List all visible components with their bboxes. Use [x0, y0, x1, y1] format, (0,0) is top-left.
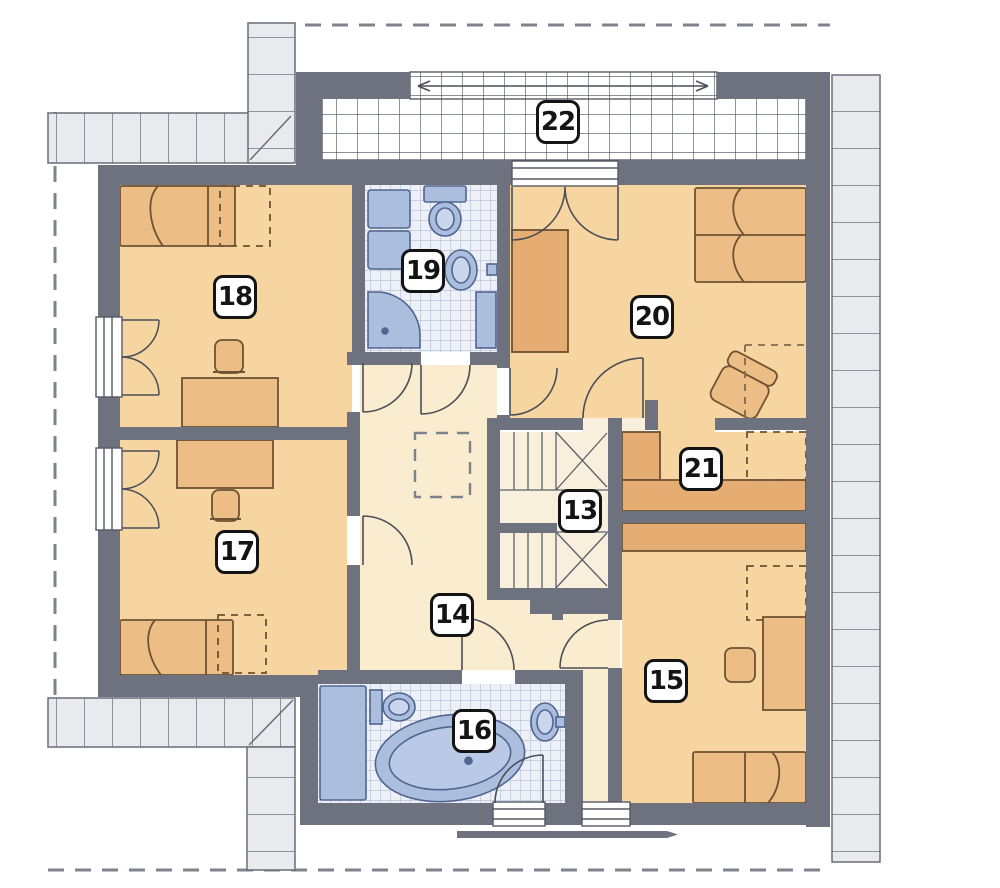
floor-plan-canvas: 13 14 15 16 17 18 19 20 21 22 [0, 0, 1000, 888]
desk-15-icon [763, 617, 806, 710]
room-label-17: 17 [215, 530, 259, 574]
eave-bottom-left-vertical [247, 747, 295, 870]
desk-17-icon [177, 440, 273, 488]
room-label-14: 14 [430, 593, 474, 637]
room-label-18: 18 [213, 275, 257, 319]
bath16-cabinet-icon [320, 686, 366, 800]
vestibule-floor [583, 670, 608, 803]
room-label-21: 21 [679, 447, 723, 491]
eave-right-vertical [832, 75, 880, 862]
wardrobe-15-strip [622, 523, 806, 551]
room-label-16: 16 [452, 709, 496, 753]
eave-bottom-left-horizontal [48, 698, 295, 747]
desk-18-icon [182, 378, 278, 427]
bed-18-icon [120, 186, 235, 246]
room-label-13: 13 [558, 489, 602, 533]
hall-14-floor-a [360, 365, 497, 418]
chair-15-icon [725, 648, 755, 682]
room-label-22: 22 [536, 100, 580, 144]
chair-18-icon [215, 340, 243, 373]
south-threshold-vestibule [582, 802, 630, 826]
south-threshold-bath16 [493, 802, 545, 826]
double-bed-20-icon [695, 188, 806, 282]
bed-15-icon [693, 752, 806, 803]
terrace-door-threshold [512, 161, 618, 186]
wardrobe-20-icon [512, 230, 568, 352]
wardrobe-21-left [622, 432, 660, 480]
bath19-side-cabinet [476, 292, 496, 348]
floor-plan-drawing [0, 0, 1000, 888]
room-label-15: 15 [644, 659, 688, 703]
passage-20-21-floor [658, 418, 715, 432]
room-label-20: 20 [630, 295, 674, 339]
eave-top-left-vertical [248, 23, 295, 163]
ground-floor-edge-line [457, 831, 678, 838]
room-label-19: 19 [401, 249, 445, 293]
washer-icon [368, 190, 410, 228]
hall-14-floor-b [360, 418, 487, 432]
chair-17-icon [212, 490, 239, 521]
toilet-icon [370, 690, 415, 724]
bed-17-icon [120, 620, 233, 675]
